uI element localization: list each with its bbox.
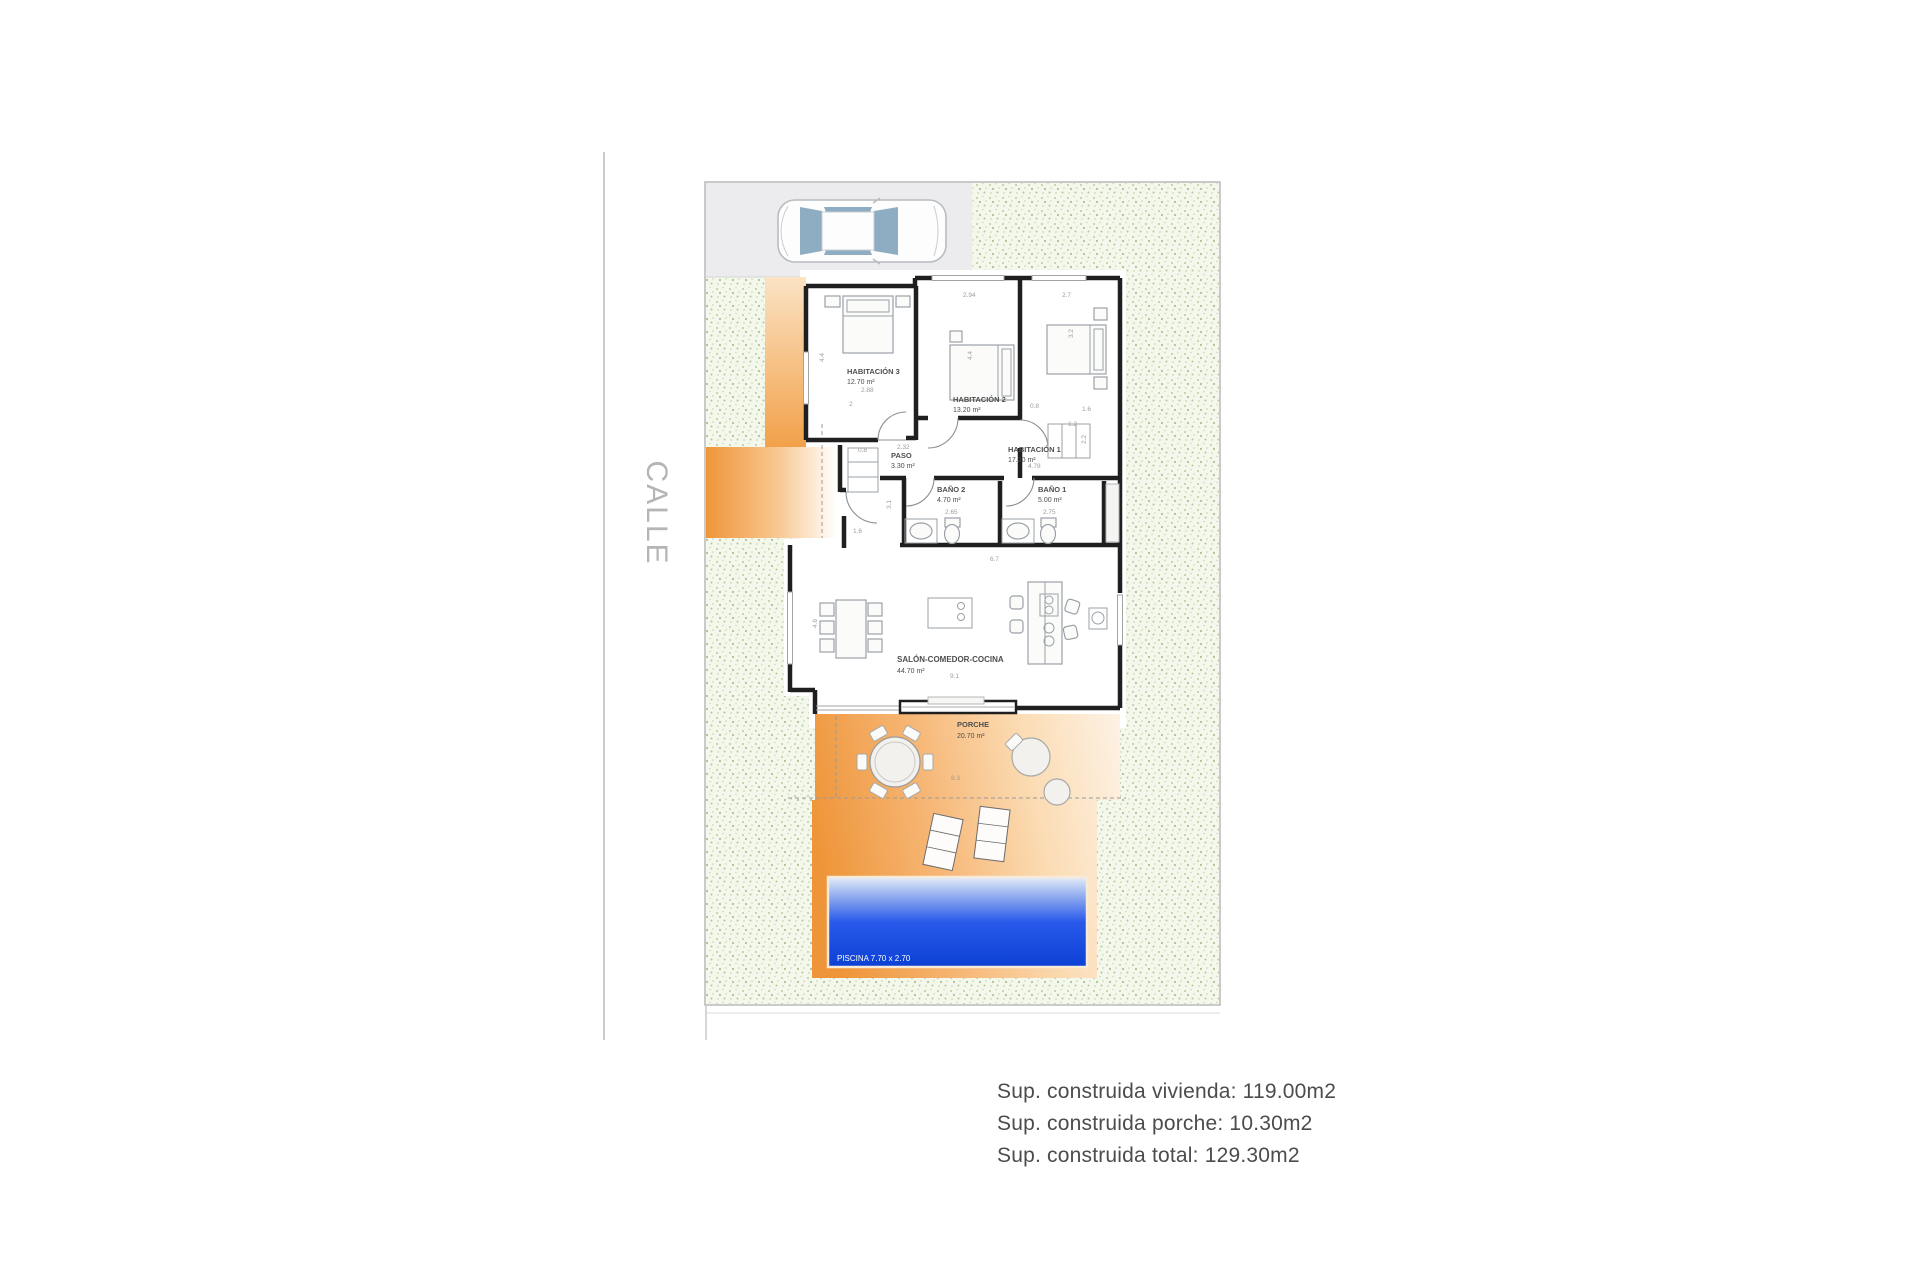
summary-porche: Sup. construida porche: 10.30m2: [997, 1108, 1336, 1140]
svg-text:5.00 m²: 5.00 m²: [1038, 497, 1062, 504]
svg-text:9.1: 9.1: [950, 673, 959, 680]
svg-text:20.70 m²: 20.70 m²: [957, 733, 985, 740]
svg-text:44.70 m²: 44.70 m²: [897, 668, 925, 675]
svg-text:1.6: 1.6: [853, 528, 862, 535]
pool-label: PISCINA 7.70 x 2.70: [837, 954, 911, 963]
floor-plan-page: PISCINA 7.70 x 2.70: [0, 0, 1920, 1280]
room-label-porche: PORCHE: [957, 720, 989, 729]
room-label-hab1: HABITACIÓN 1: [1008, 445, 1061, 454]
svg-text:1.6: 1.6: [1082, 406, 1091, 413]
svg-text:4.6: 4.6: [812, 619, 819, 628]
svg-text:2.65: 2.65: [945, 509, 958, 516]
svg-text:3.2: 3.2: [1068, 329, 1075, 338]
svg-text:4.78: 4.78: [1028, 463, 1041, 470]
room-label-paso: PASO: [891, 451, 912, 460]
summary-total: Sup. construida total: 129.30m2: [997, 1140, 1336, 1172]
svg-text:4.4: 4.4: [819, 353, 826, 362]
svg-text:0.8: 0.8: [1030, 403, 1039, 410]
room-label-bano1: BAÑO 1: [1038, 485, 1066, 494]
car-icon: [778, 198, 946, 264]
street-name-label: CALLE: [606, 413, 706, 613]
floor-plan-drawing: PISCINA 7.70 x 2.70: [0, 0, 1920, 1280]
side-path: [765, 277, 806, 447]
svg-text:1.2: 1.2: [1068, 421, 1077, 428]
svg-text:3.30 m²: 3.30 m²: [891, 463, 915, 470]
room-label-bano2: BAÑO 2: [937, 485, 965, 494]
room-label-hab3: HABITACIÓN 3: [847, 367, 900, 376]
svg-text:8.3: 8.3: [951, 775, 960, 782]
room-label-salon: SALÓN-COMEDOR-COCINA: [897, 655, 1004, 664]
svg-text:4.4: 4.4: [967, 351, 974, 360]
svg-text:2.2: 2.2: [1081, 435, 1088, 444]
svg-text:2.75: 2.75: [1043, 509, 1056, 516]
svg-text:0.8: 0.8: [858, 447, 867, 454]
room-label-hab2: HABITACIÓN 2: [953, 395, 1006, 404]
pool: PISCINA 7.70 x 2.70: [828, 877, 1087, 967]
svg-text:13.20 m²: 13.20 m²: [953, 407, 981, 414]
svg-text:2.94: 2.94: [963, 292, 976, 299]
svg-text:2.88: 2.88: [861, 387, 874, 394]
svg-text:2.32: 2.32: [897, 444, 910, 451]
summary-vivienda: Sup. construida vivienda: 119.00m2: [997, 1076, 1336, 1108]
svg-text:3.1: 3.1: [886, 500, 893, 509]
svg-text:12.70 m²: 12.70 m²: [847, 379, 875, 386]
entrance-path: [706, 447, 837, 538]
sun-lounger: [974, 806, 1010, 861]
surface-summary: Sup. construida vivienda: 119.00m2 Sup. …: [997, 1076, 1336, 1172]
svg-text:2: 2: [849, 401, 853, 408]
svg-text:4.70 m²: 4.70 m²: [937, 497, 961, 504]
svg-text:6.7: 6.7: [990, 556, 999, 563]
svg-text:2.7: 2.7: [1062, 292, 1071, 299]
